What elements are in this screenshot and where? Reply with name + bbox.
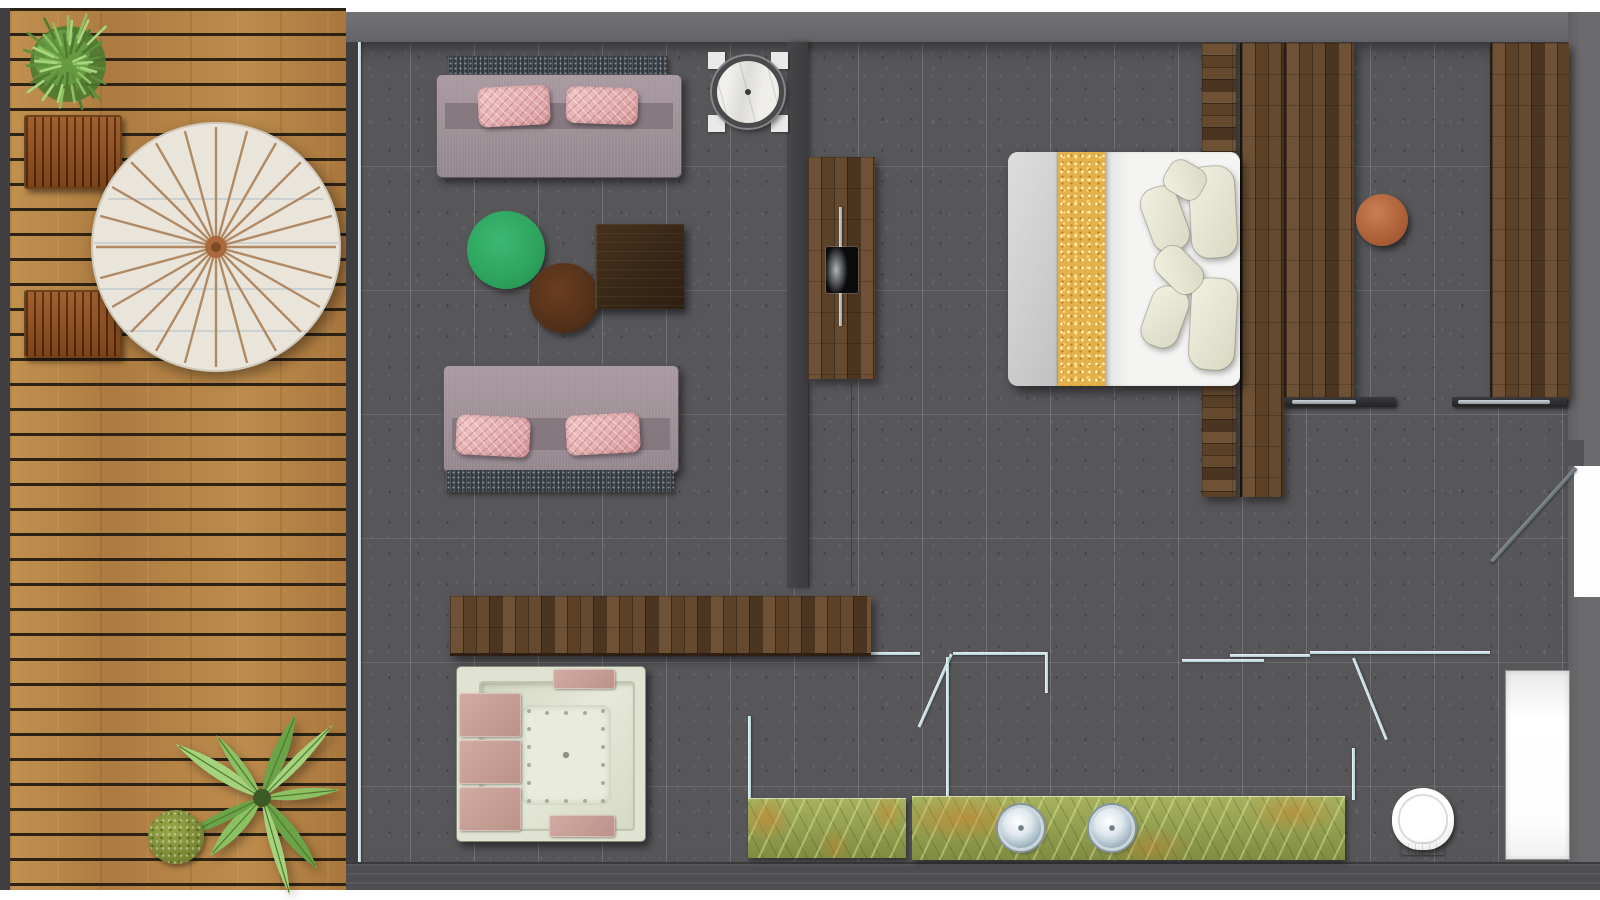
- sliding-glass-panel-1: [1182, 659, 1264, 662]
- console-bench: [450, 596, 871, 656]
- sofa-top-pillow-1: [477, 84, 551, 128]
- jacuzzi-headrest-1: [459, 693, 521, 737]
- square-dark-coffee-table: [595, 224, 684, 309]
- sofa-bottom-pillow-1: [455, 414, 531, 458]
- partition-guide-line-2: [851, 383, 852, 588]
- wardrobe-column-2: [1284, 43, 1354, 399]
- jacuzzi: [456, 666, 646, 842]
- shower-side-glass-left: [748, 716, 751, 800]
- sofa-top-pillow-2: [565, 86, 638, 125]
- parasol: [86, 117, 346, 377]
- bed-pillows: [1138, 158, 1246, 382]
- marble-table-center-dot: [745, 89, 751, 95]
- entry-doorstop: [1568, 440, 1584, 466]
- shower-glass-wall-2: [953, 652, 1048, 655]
- vanity-counter-left: [748, 798, 906, 858]
- tv-screen: [826, 247, 858, 293]
- sink-1: [998, 805, 1044, 851]
- sofa-top: [436, 74, 682, 178]
- sliding-glass-panel-2: [1230, 654, 1310, 657]
- facade-window-glass: [358, 42, 361, 862]
- bedside-stool: [1356, 194, 1408, 246]
- jacuzzi-headrest-2: [459, 740, 521, 784]
- top-wall: [346, 12, 1600, 44]
- toilet-glass-wall: [1310, 651, 1490, 654]
- shower-side-glass-right: [946, 657, 949, 797]
- toilet: [1392, 788, 1454, 858]
- bed-gold-runner: [1058, 152, 1105, 386]
- wardrobe-handle-1: [1284, 397, 1396, 407]
- jacuzzi-pad-top: [553, 669, 615, 689]
- jacuzzi-headrest-3: [459, 787, 521, 831]
- round-brown-ottoman: [529, 263, 599, 333]
- toilet-seat: [1398, 794, 1448, 844]
- bottom-wall: [346, 862, 1600, 890]
- partition-guide-line-1: [808, 383, 809, 588]
- jacuzzi-pad-bottom: [549, 815, 615, 837]
- glass-return-stub: [1045, 652, 1048, 693]
- shrub-plant: [14, 12, 118, 116]
- sink-2: [1089, 805, 1135, 851]
- floorplan-root: [0, 0, 1600, 900]
- wardrobe-column-1: [1240, 43, 1283, 497]
- headboard-panel-lower: [1202, 383, 1236, 497]
- wardrobe-column-3: [1490, 43, 1569, 399]
- toilet-base: [1401, 844, 1445, 855]
- fern-plant: [158, 706, 358, 896]
- facade-wall-strip: [346, 42, 358, 862]
- deck-left-wall: [0, 8, 10, 890]
- headboard-panel-upper: [1202, 43, 1236, 155]
- jacuzzi-drain: [563, 752, 569, 758]
- round-marble-side-table: [712, 56, 784, 128]
- moss-ball-plant: [148, 810, 204, 864]
- wardrobe-handle-2: [1452, 397, 1567, 407]
- sofa-top-back-cushion: [448, 56, 668, 76]
- entry-door-opening: [1574, 466, 1600, 597]
- toilet-side-glass: [1352, 748, 1355, 800]
- round-green-table: [467, 211, 545, 289]
- sofa-bottom-back-cushion: [446, 470, 674, 492]
- shower-niche: [1505, 670, 1570, 860]
- sofa-bottom-pillow-2: [565, 412, 641, 456]
- tv-partition-wall: [787, 42, 808, 588]
